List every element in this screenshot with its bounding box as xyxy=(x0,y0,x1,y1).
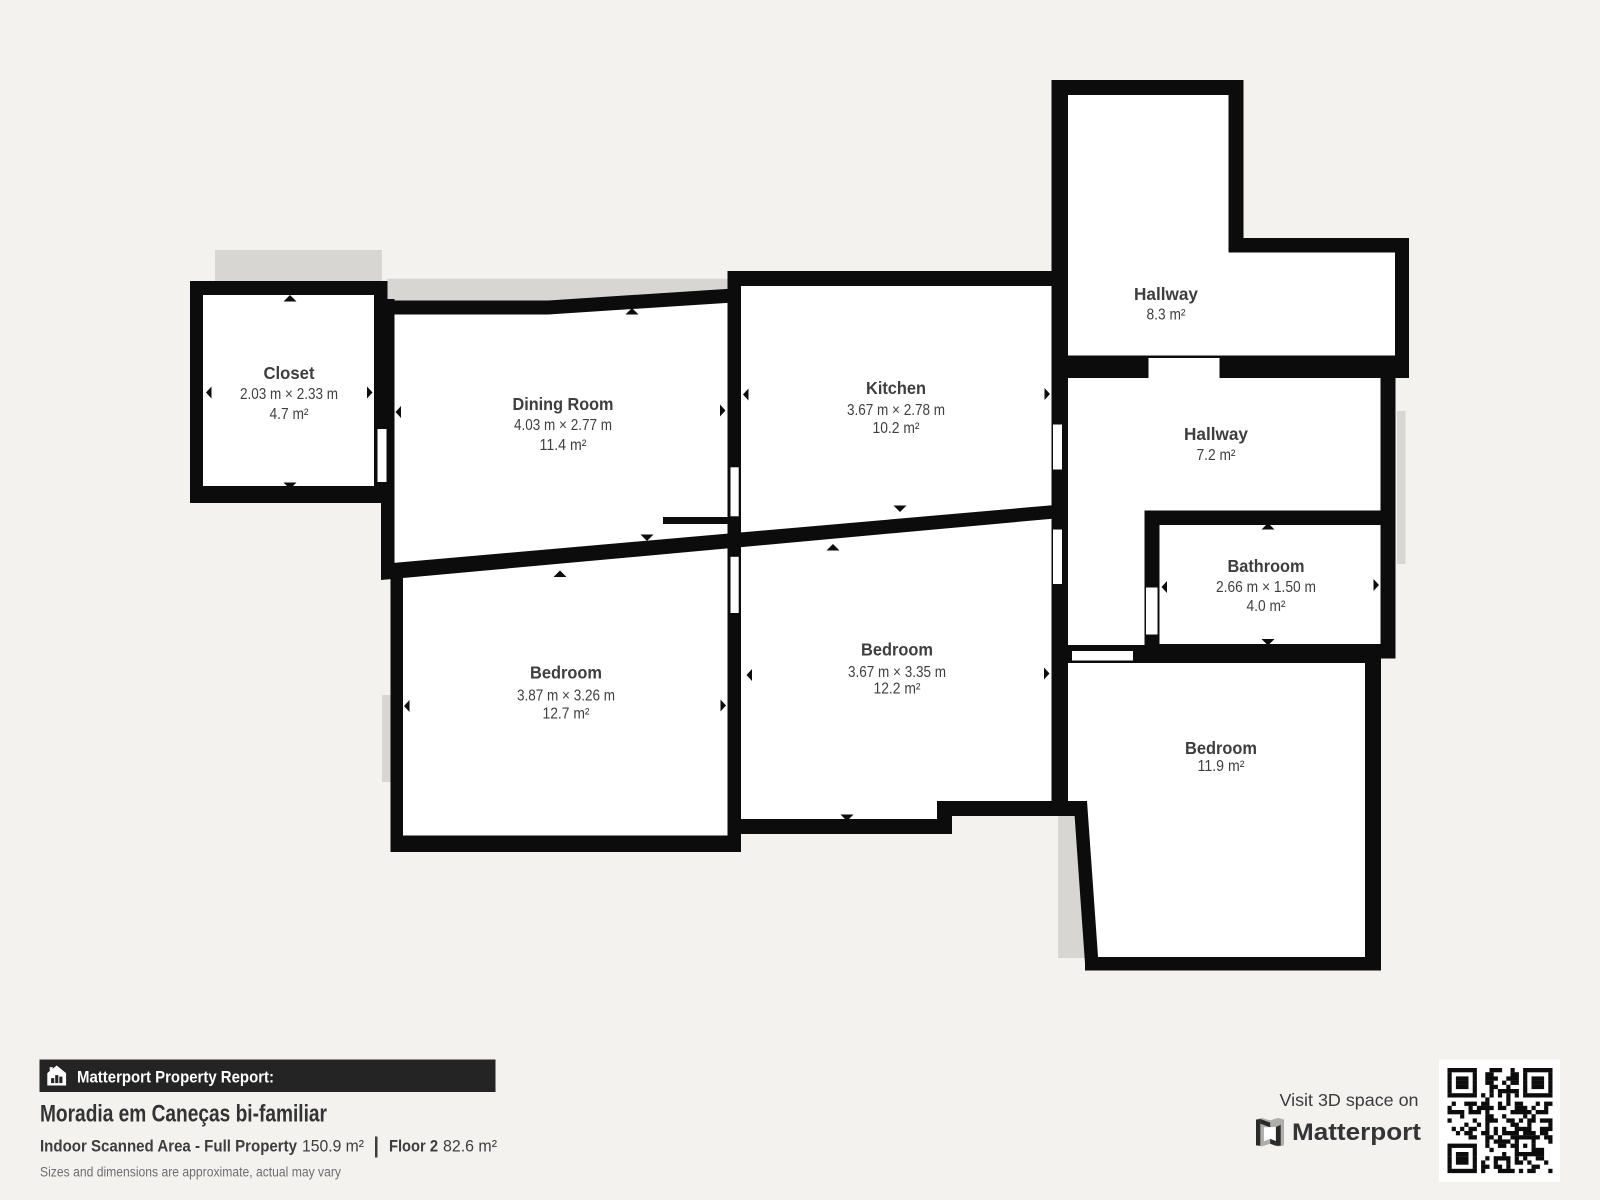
svg-text:Bedroom: Bedroom xyxy=(530,663,602,683)
svg-text:11.9 m²: 11.9 m² xyxy=(1198,758,1245,775)
svg-text:Hallway: Hallway xyxy=(1134,284,1198,304)
svg-text:Dining Room: Dining Room xyxy=(513,394,614,414)
svg-text:Matterport: Matterport xyxy=(1292,1119,1421,1146)
svg-text:Bedroom: Bedroom xyxy=(861,640,933,660)
svg-text:Hallway: Hallway xyxy=(1184,424,1248,444)
svg-text:Matterport Property Report:: Matterport Property Report: xyxy=(77,1069,274,1087)
svg-text:4.7 m²: 4.7 m² xyxy=(270,406,309,423)
svg-text:3.67 m × 3.35 m: 3.67 m × 3.35 m xyxy=(848,664,946,681)
svg-text:Bathroom: Bathroom xyxy=(1228,556,1305,576)
svg-text:Floor 2: Floor 2 xyxy=(389,1138,438,1156)
svg-text:7.2 m²: 7.2 m² xyxy=(1197,447,1236,464)
svg-text:4.03 m × 2.77 m: 4.03 m × 2.77 m xyxy=(514,417,612,434)
svg-text:3.87 m × 3.26 m: 3.87 m × 3.26 m xyxy=(517,688,615,705)
svg-text:Sizes and dimensions are appro: Sizes and dimensions are approximate, ac… xyxy=(40,1165,341,1180)
svg-text:Kitchen: Kitchen xyxy=(866,378,926,398)
svg-text:12.7 m²: 12.7 m² xyxy=(543,706,590,723)
svg-text:11.4 m²: 11.4 m² xyxy=(540,437,587,454)
svg-text:Moradia em Caneças bi-familiar: Moradia em Caneças bi-familiar xyxy=(40,1101,327,1128)
svg-text:8.3 m²: 8.3 m² xyxy=(1147,307,1186,324)
svg-text:12.2 m²: 12.2 m² xyxy=(874,681,921,698)
svg-text:82.6 m²: 82.6 m² xyxy=(443,1138,497,1156)
svg-text:Indoor Scanned Area - Full Pro: Indoor Scanned Area - Full Property xyxy=(40,1138,298,1156)
svg-text:4.0 m²: 4.0 m² xyxy=(1247,598,1286,615)
svg-text:2.66 m × 1.50 m: 2.66 m × 1.50 m xyxy=(1216,579,1316,596)
svg-text:150.9 m²: 150.9 m² xyxy=(302,1138,364,1156)
svg-text:Visit 3D space on: Visit 3D space on xyxy=(1280,1090,1419,1110)
svg-text:Bedroom: Bedroom xyxy=(1185,738,1257,758)
svg-text:3.67 m × 2.78 m: 3.67 m × 2.78 m xyxy=(847,402,945,419)
svg-text:Closet: Closet xyxy=(264,363,315,383)
svg-text:2.03 m × 2.33 m: 2.03 m × 2.33 m xyxy=(240,386,338,403)
svg-text:10.2 m²: 10.2 m² xyxy=(873,420,920,437)
